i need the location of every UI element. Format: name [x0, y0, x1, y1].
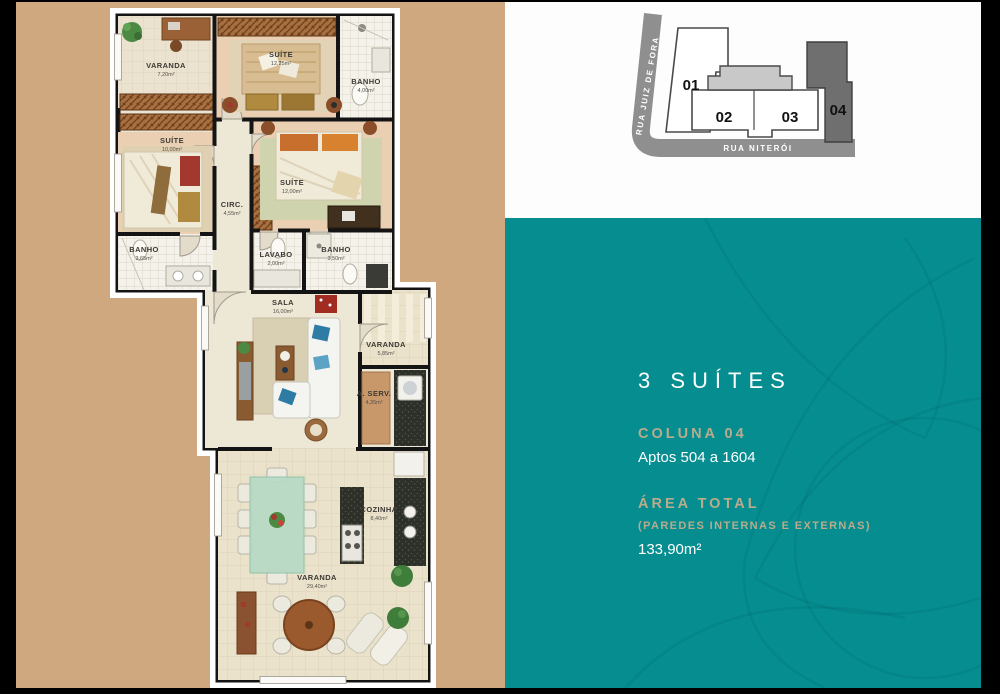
svg-text:29,40m²: 29,40m² — [307, 584, 327, 590]
apartments-range: Aptos 504 a 1604 — [638, 449, 871, 466]
svg-text:4,00m²: 4,00m² — [357, 88, 374, 94]
cabinet-red — [315, 295, 337, 313]
svg-text:BANHO: BANHO — [321, 245, 351, 254]
bed-suite1 — [122, 146, 212, 232]
svg-text:LAVABO: LAVABO — [260, 250, 293, 259]
dining-table — [238, 468, 316, 584]
common-area-shape — [708, 66, 792, 90]
site-diagram: 01 02 03 04 RUA JUIZ DE FORA RUA NITERÓI — [620, 12, 890, 172]
svg-text:4,55m²: 4,55m² — [223, 211, 240, 217]
svg-text:2,00m²: 2,00m² — [267, 261, 284, 267]
svg-text:SUÍTE: SUÍTE — [269, 50, 293, 59]
svg-text:VARANDA: VARANDA — [366, 340, 406, 349]
svg-text:12,00m²: 12,00m² — [282, 189, 302, 195]
plan-title: 3 SUÍTES — [638, 368, 871, 394]
svg-text:VARANDA: VARANDA — [297, 573, 337, 582]
svg-text:12,25m²: 12,25m² — [271, 61, 291, 67]
svg-text:3,50m²: 3,50m² — [327, 256, 344, 262]
plant — [387, 607, 409, 629]
info-text-block: 3 SUÍTES COLUNA 04 Aptos 504 a 1604 ÁREA… — [638, 368, 871, 558]
svg-text:3,65m²: 3,65m² — [135, 256, 152, 262]
svg-text:VARANDA: VARANDA — [146, 61, 186, 70]
svg-text:8,40m²: 8,40m² — [370, 516, 387, 522]
svg-text:SUÍTE: SUÍTE — [280, 178, 304, 187]
svg-text:SALA: SALA — [272, 298, 294, 307]
svg-text:A. SERV.: A. SERV. — [357, 389, 391, 398]
info-panel: 3 SUÍTES COLUNA 04 Aptos 504 a 1604 ÁREA… — [505, 218, 981, 688]
svg-text:SUÍTE: SUÍTE — [160, 136, 184, 145]
unit-02-03-shape — [692, 90, 818, 137]
svg-text:BANHO: BANHO — [129, 245, 159, 254]
brochure-page: VARANDA 7,20m² SUÍTE 12,25m² BANHO 4,00m… — [0, 0, 1000, 694]
floor-plan: VARANDA 7,20m² SUÍTE 12,25m² BANHO 4,00m… — [110, 6, 440, 690]
svg-text:4,35m²: 4,35m² — [365, 400, 382, 406]
area-title: ÁREA TOTAL — [638, 496, 871, 512]
svg-text:BANHO: BANHO — [351, 77, 381, 86]
plant — [391, 565, 413, 587]
service-area-set — [362, 370, 426, 446]
unit-01-label: 01 — [683, 77, 700, 94]
column-label: COLUNA 04 — [638, 426, 871, 442]
svg-text:5,85m²: 5,85m² — [377, 351, 394, 357]
svg-text:10,00m²: 10,00m² — [162, 147, 182, 153]
unit-04-label: 04 — [830, 102, 847, 119]
room-label-suite-1: SUÍTE 10,00m² — [160, 136, 184, 153]
svg-text:7,20m²: 7,20m² — [157, 72, 174, 78]
round-table — [273, 596, 345, 654]
area-value: 133,90m² — [638, 541, 871, 558]
svg-text:CIRC.: CIRC. — [221, 200, 243, 209]
svg-text:16,00m²: 16,00m² — [273, 309, 293, 315]
unit-02-label: 02 — [716, 109, 733, 126]
room-label-sala: SALA 16,00m² — [272, 298, 294, 315]
room-label-suite-3: SUÍTE 12,00m² — [280, 178, 304, 195]
room-label-suite-2: SUÍTE 12,25m² — [269, 50, 293, 67]
room-label-circ: CIRC. 4,55m² — [221, 200, 243, 217]
area-subtitle: (PAREDES INTERNAS E EXTERNAS) — [638, 520, 871, 532]
svg-text:COZINHA: COZINHA — [361, 505, 398, 514]
street-bottom-label: RUA NITERÓI — [723, 144, 792, 153]
unit-03-label: 03 — [782, 109, 799, 126]
